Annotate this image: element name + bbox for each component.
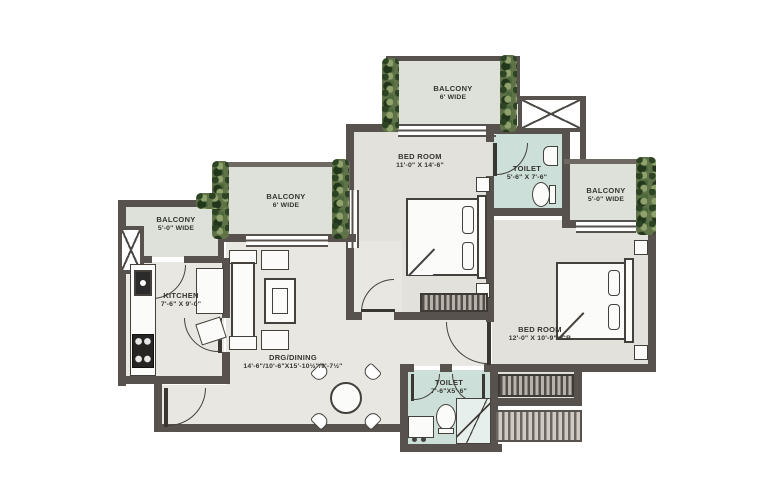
label-toilet-2: TOILET 7'-6"X5'-6" (431, 378, 467, 396)
wall (222, 352, 230, 384)
label-balcony-right: BALCONY 5'-0" WIDE (586, 186, 625, 204)
label-kitchen: KITCHEN 7'-6" X 9'-0" (161, 291, 201, 309)
shower-area (456, 398, 491, 444)
wall (394, 312, 494, 320)
toilet-wc (436, 404, 456, 430)
toilet-1-door-leaf (493, 143, 497, 176)
wall (486, 364, 656, 372)
wall (486, 398, 582, 406)
armchair (261, 250, 289, 270)
wardrobe (498, 374, 574, 397)
pillow (608, 270, 620, 296)
wall (346, 248, 354, 318)
window (576, 220, 636, 233)
toilet-wc-tank (438, 428, 454, 434)
label-living: DRG/DINING 14'-6"/10'-6"X15'-10½"/9'-7½" (243, 353, 342, 371)
washing-machine (408, 416, 434, 438)
entry-door-leaf (164, 388, 168, 427)
pillow (608, 304, 620, 330)
washing-machine-knob (412, 437, 417, 442)
planter (500, 55, 517, 132)
planter (382, 58, 399, 132)
wall (184, 256, 224, 263)
armchair (261, 330, 289, 350)
bedroom-1-door-leaf (361, 309, 395, 312)
sink-dot (140, 280, 146, 286)
pillow (462, 206, 474, 234)
wash-basin (543, 146, 558, 166)
label-bedroom-2: BED ROOM 12'-0" X 10'-9"+CB (509, 325, 572, 343)
toilet-2-door-leaf (411, 374, 414, 401)
wall (346, 312, 362, 320)
headboard (477, 195, 487, 279)
sofa (231, 262, 255, 338)
sofa-armrest (229, 336, 257, 350)
exterior-ledge (494, 410, 582, 442)
wall (486, 208, 570, 216)
dining-table (330, 382, 362, 414)
label-balcony-left: BALCONY 5'-0" WIDE (156, 215, 195, 233)
coffee-table-inner (272, 288, 288, 314)
floor-plan: BALCONY 6' WIDE BED ROOM 11'-0" X 14'-6"… (0, 0, 780, 500)
wall (118, 376, 230, 384)
duct-shaft (518, 96, 584, 132)
planter (332, 159, 349, 239)
pillow (462, 242, 474, 270)
planter (636, 157, 656, 235)
toilet-wc-tank (549, 185, 556, 204)
label-balcony-mid: BALCONY 6' WIDE (266, 192, 305, 210)
washing-machine-knob (421, 437, 426, 442)
kitchen-stove (132, 334, 154, 368)
label-balcony-top: BALCONY 6' WIDE (433, 84, 472, 102)
label-bedroom-1: BED ROOM 11'-0" X 14'-6" (396, 152, 444, 170)
bedside-table (634, 345, 648, 360)
headboard (624, 258, 634, 343)
window (398, 124, 496, 137)
wardrobe (420, 293, 488, 312)
parapet-wall (222, 162, 350, 167)
planter (196, 193, 228, 209)
toilet-wc (532, 182, 550, 207)
wall (400, 444, 502, 452)
bedroom-2-door-leaf (487, 322, 491, 365)
wall (440, 364, 452, 372)
wall (648, 220, 656, 372)
wall (154, 424, 420, 432)
bedside-table (476, 177, 490, 192)
label-toilet-1: TOILET 5'-6" X 7'-6" (507, 164, 547, 182)
window (246, 234, 328, 247)
bedside-table (634, 240, 648, 255)
wall (400, 364, 408, 452)
